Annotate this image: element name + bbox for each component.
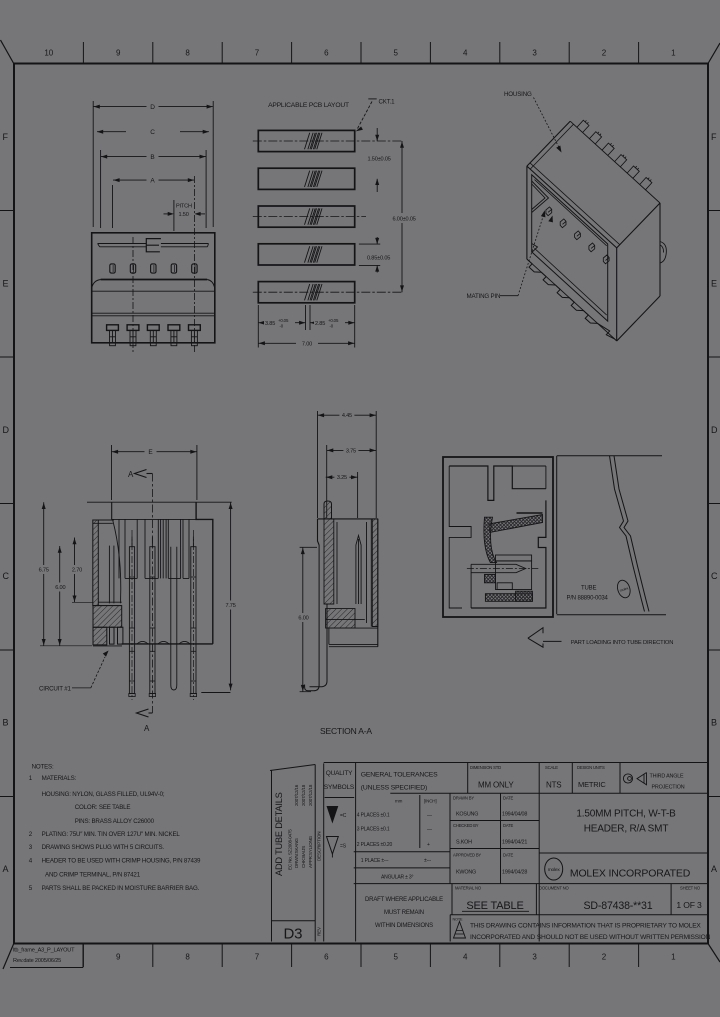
svg-text:3: 3 (532, 953, 537, 962)
svg-text:7.75: 7.75 (226, 603, 236, 609)
svg-text:APPR:SYLIONG: APPR:SYLIONG (308, 835, 313, 868)
svg-text:HEADER, R/A SMT: HEADER, R/A SMT (584, 824, 669, 835)
svg-text:DRAWING SHOWS PLUG WITH 5 CIRC: DRAWING SHOWS PLUG WITH 5 CIRCUITS. (42, 844, 165, 851)
svg-text:—: — (427, 827, 432, 833)
svg-text:1.50±0.05: 1.50±0.05 (368, 156, 391, 162)
svg-text:A: A (3, 864, 9, 874)
svg-text:NOTES:: NOTES: (32, 764, 54, 771)
svg-text:9: 9 (116, 953, 121, 962)
svg-text:(UNLESS SPECIFIED): (UNLESS SPECIFIED) (361, 785, 427, 792)
svg-text:PLATING: 75U″ MIN. TIN OVER 12: PLATING: 75U″ MIN. TIN OVER 127U″ MIN. N… (42, 831, 181, 838)
svg-text:D: D (3, 425, 10, 435)
svg-text:A: A (711, 864, 717, 874)
svg-text:DRAWN BY: DRAWN BY (453, 796, 474, 801)
svg-text:CIRCUIT #1: CIRCUIT #1 (39, 685, 72, 692)
svg-text:D3: D3 (284, 926, 303, 943)
svg-text:7: 7 (255, 953, 260, 962)
svg-text:4.45: 4.45 (342, 413, 352, 419)
svg-text:DATE: DATE (503, 823, 514, 828)
svg-text:HOUSING: HOUSING (504, 91, 532, 98)
svg-text:SHEET NO: SHEET NO (680, 886, 701, 891)
svg-text:1.50: 1.50 (179, 212, 189, 218)
svg-text:7: 7 (255, 49, 260, 58)
svg-text:PROJECTION: PROJECTION (652, 785, 685, 791)
svg-text:[INCH]: [INCH] (424, 799, 436, 804)
svg-text:1 PLACE ±---: 1 PLACE ±--- (361, 858, 389, 864)
svg-text:4: 4 (463, 953, 468, 962)
svg-text:C: C (711, 571, 718, 581)
svg-text:QUALITY: QUALITY (326, 770, 353, 777)
svg-text:6.00: 6.00 (55, 585, 65, 591)
svg-text:6: 6 (324, 49, 329, 58)
svg-text:1994/04/21: 1994/04/21 (502, 840, 527, 846)
svg-text:3: 3 (532, 49, 537, 58)
svg-text:SCALE: SCALE (545, 765, 558, 770)
svg-text:2.85: 2.85 (315, 321, 325, 327)
svg-text:NTS: NTS (546, 781, 561, 790)
svg-text:AND CRIMP TERMINAL, P/N 87421: AND CRIMP TERMINAL, P/N 87421 (45, 871, 141, 878)
svg-text:DESCRIPTION: DESCRIPTION (317, 832, 322, 861)
svg-text:B: B (150, 154, 154, 161)
svg-text:4: 4 (463, 49, 468, 58)
svg-text:C: C (3, 571, 10, 581)
svg-text:PARTS SHALL BE PACKED IN MOIST: PARTS SHALL BE PACKED IN MOISTURE BARRIE… (42, 885, 200, 892)
svg-text:mm: mm (395, 799, 403, 804)
svg-text:10: 10 (44, 49, 53, 58)
svg-text:2007/12/16: 2007/12/16 (294, 784, 299, 806)
svg-text:=C: =C (340, 813, 347, 819)
svg-text:6.00±0.05: 6.00±0.05 (393, 217, 416, 223)
svg-text:+: + (427, 842, 430, 848)
svg-text:MOLEX INCORPORATED: MOLEX INCORPORATED (570, 868, 691, 880)
svg-text:6.75: 6.75 (39, 568, 49, 574)
svg-text:1 OF 3: 1 OF 3 (676, 900, 702, 910)
svg-text:APPROVED BY: APPROVED BY (453, 853, 481, 858)
svg-text:7.00: 7.00 (302, 341, 312, 347)
svg-text:GENERAL TOLERANCES: GENERAL TOLERANCES (361, 772, 438, 779)
svg-text:APPLICABLE PCB LAYOUT: APPLICABLE PCB LAYOUT (268, 102, 349, 109)
svg-text:E: E (711, 278, 717, 288)
svg-text:SD-87438-**31: SD-87438-**31 (584, 900, 653, 912)
svg-text:DATE: DATE (503, 796, 514, 801)
svg-text:2007/12/18: 2007/12/18 (301, 784, 306, 806)
svg-text:+0.05: +0.05 (328, 318, 339, 323)
svg-text:1.50MM PITCH, W-T-B: 1.50MM PITCH, W-T-B (576, 809, 676, 820)
svg-text:+0.05: +0.05 (278, 318, 289, 323)
svg-text:2007/12/18: 2007/12/18 (308, 784, 313, 806)
svg-text:±---: ±--- (424, 858, 432, 864)
svg-text:CHECKED BY: CHECKED BY (453, 823, 479, 828)
svg-text:KWONG: KWONG (456, 870, 476, 876)
svg-text:DOCUMENT NO: DOCUMENT NO (539, 886, 570, 891)
svg-text:3 PLACES ±0.1: 3 PLACES ±0.1 (357, 827, 390, 833)
svg-text:2 PLACES ±0.20: 2 PLACES ±0.20 (357, 842, 393, 848)
svg-text:MATERIAL NO: MATERIAL NO (455, 886, 482, 891)
svg-text:1994/04/28: 1994/04/28 (502, 870, 527, 876)
svg-text:PART LOADING INTO TUBE DIRECTI: PART LOADING INTO TUBE DIRECTION (571, 640, 674, 646)
svg-text:2.70: 2.70 (72, 568, 82, 574)
svg-text:REV: REV (317, 926, 322, 936)
svg-text:A: A (144, 724, 150, 733)
svg-text:5: 5 (394, 49, 399, 58)
svg-text:ltb_frame_A3_P_LAYOUT: ltb_frame_A3_P_LAYOUT (13, 948, 75, 954)
svg-text:DESIGN UNITS: DESIGN UNITS (577, 765, 605, 770)
svg-text:MM ONLY: MM ONLY (478, 781, 514, 790)
svg-text:CHK:BAIJS: CHK:BAIJS (301, 846, 306, 868)
svg-text:Rev.date 2005/06/25: Rev.date 2005/06/25 (13, 958, 61, 964)
svg-text:HOUSING: NYLON, GLASS FILLED,: HOUSING: NYLON, GLASS FILLED, UL94V-0; (42, 791, 165, 798)
svg-text:ADD TUBE DETAILS: ADD TUBE DETAILS (274, 792, 284, 876)
svg-text:ANGULAR ± 3°: ANGULAR ± 3° (381, 875, 413, 881)
svg-text:1994/04/08: 1994/04/08 (502, 812, 527, 818)
svg-text:WITHIN DIMENSIONS: WITHIN DIMENSIONS (375, 923, 433, 929)
svg-text:8: 8 (185, 953, 190, 962)
svg-text:8: 8 (185, 49, 190, 58)
svg-text:D: D (711, 425, 718, 435)
svg-text:METRIC: METRIC (578, 780, 606, 789)
svg-text:KOSUNG: KOSUNG (456, 812, 478, 818)
svg-text:CKT.1: CKT.1 (379, 98, 396, 105)
svg-text:—: — (427, 813, 432, 819)
svg-text:D: D (150, 104, 155, 111)
svg-text:HEADER TO BE USED WITH CRIMP H: HEADER TO BE USED WITH CRIMP HOUSING, P/… (42, 858, 201, 865)
svg-text:molex: molex (548, 867, 561, 873)
svg-text:A: A (128, 470, 134, 479)
svg-text:EC No. SZ2008-0475: EC No. SZ2008-0475 (287, 829, 292, 870)
svg-text:THIRD ANGLE: THIRD ANGLE (650, 774, 685, 780)
svg-text:B: B (711, 718, 717, 728)
svg-text:1: 1 (671, 953, 676, 962)
svg-text:F: F (711, 132, 717, 142)
svg-text:3.85: 3.85 (265, 321, 275, 327)
svg-text:TUBE: TUBE (581, 586, 596, 592)
svg-text:=S: =S (340, 844, 347, 850)
svg-text:PITCH: PITCH (176, 204, 192, 210)
svg-text:P/N 88890-0034: P/N 88890-0034 (567, 596, 609, 602)
svg-text:S.KOH: S.KOH (456, 840, 472, 846)
svg-text:DATE: DATE (503, 853, 514, 858)
svg-text:NOTE: NOTE (453, 918, 463, 922)
svg-text:MATERIALS:: MATERIALS: (42, 775, 77, 782)
svg-text:3.25: 3.25 (337, 475, 347, 481)
svg-text:1: 1 (671, 49, 676, 58)
svg-text:6: 6 (324, 953, 329, 962)
svg-text:4 PLACES ±0.1: 4 PLACES ±0.1 (357, 813, 390, 819)
svg-text:F: F (3, 132, 9, 142)
svg-text:SECTION A-A: SECTION A-A (320, 726, 372, 736)
svg-text:THIS DRAWING CONTAINS INFORMAT: THIS DRAWING CONTAINS INFORMATION THAT I… (470, 923, 701, 930)
svg-text:INCORPORATED AND SHOULD NOT BE: INCORPORATED AND SHOULD NOT BE USED WITH… (470, 934, 711, 941)
svg-text:PINS: BRASS ALLOY C26000: PINS: BRASS ALLOY C26000 (75, 818, 155, 825)
svg-text:DRAFT WHERE APPLICABLE: DRAFT WHERE APPLICABLE (365, 897, 443, 903)
svg-text:DRWN:SKANG: DRWN:SKANG (294, 838, 299, 868)
svg-text:SYMBOLS: SYMBOLS (324, 784, 355, 791)
svg-text:COLOR: SEE TABLE: COLOR: SEE TABLE (75, 804, 131, 811)
svg-text:DIMENSION STD: DIMENSION STD (470, 765, 501, 770)
svg-text:E: E (3, 278, 9, 288)
svg-text:SEE TABLE: SEE TABLE (466, 900, 523, 912)
svg-text:0.85±0.05: 0.85±0.05 (367, 256, 390, 262)
svg-text:6.00: 6.00 (298, 616, 308, 622)
svg-text:C: C (150, 129, 155, 136)
svg-text:B: B (3, 718, 9, 728)
svg-text:2: 2 (602, 49, 607, 58)
svg-text:9: 9 (116, 49, 121, 58)
svg-text:MATING PIN: MATING PIN (467, 293, 501, 300)
svg-text:5: 5 (394, 953, 399, 962)
svg-text:2: 2 (602, 953, 607, 962)
svg-text:MUST REMAIN: MUST REMAIN (384, 910, 424, 916)
svg-text:3.75: 3.75 (346, 448, 356, 454)
